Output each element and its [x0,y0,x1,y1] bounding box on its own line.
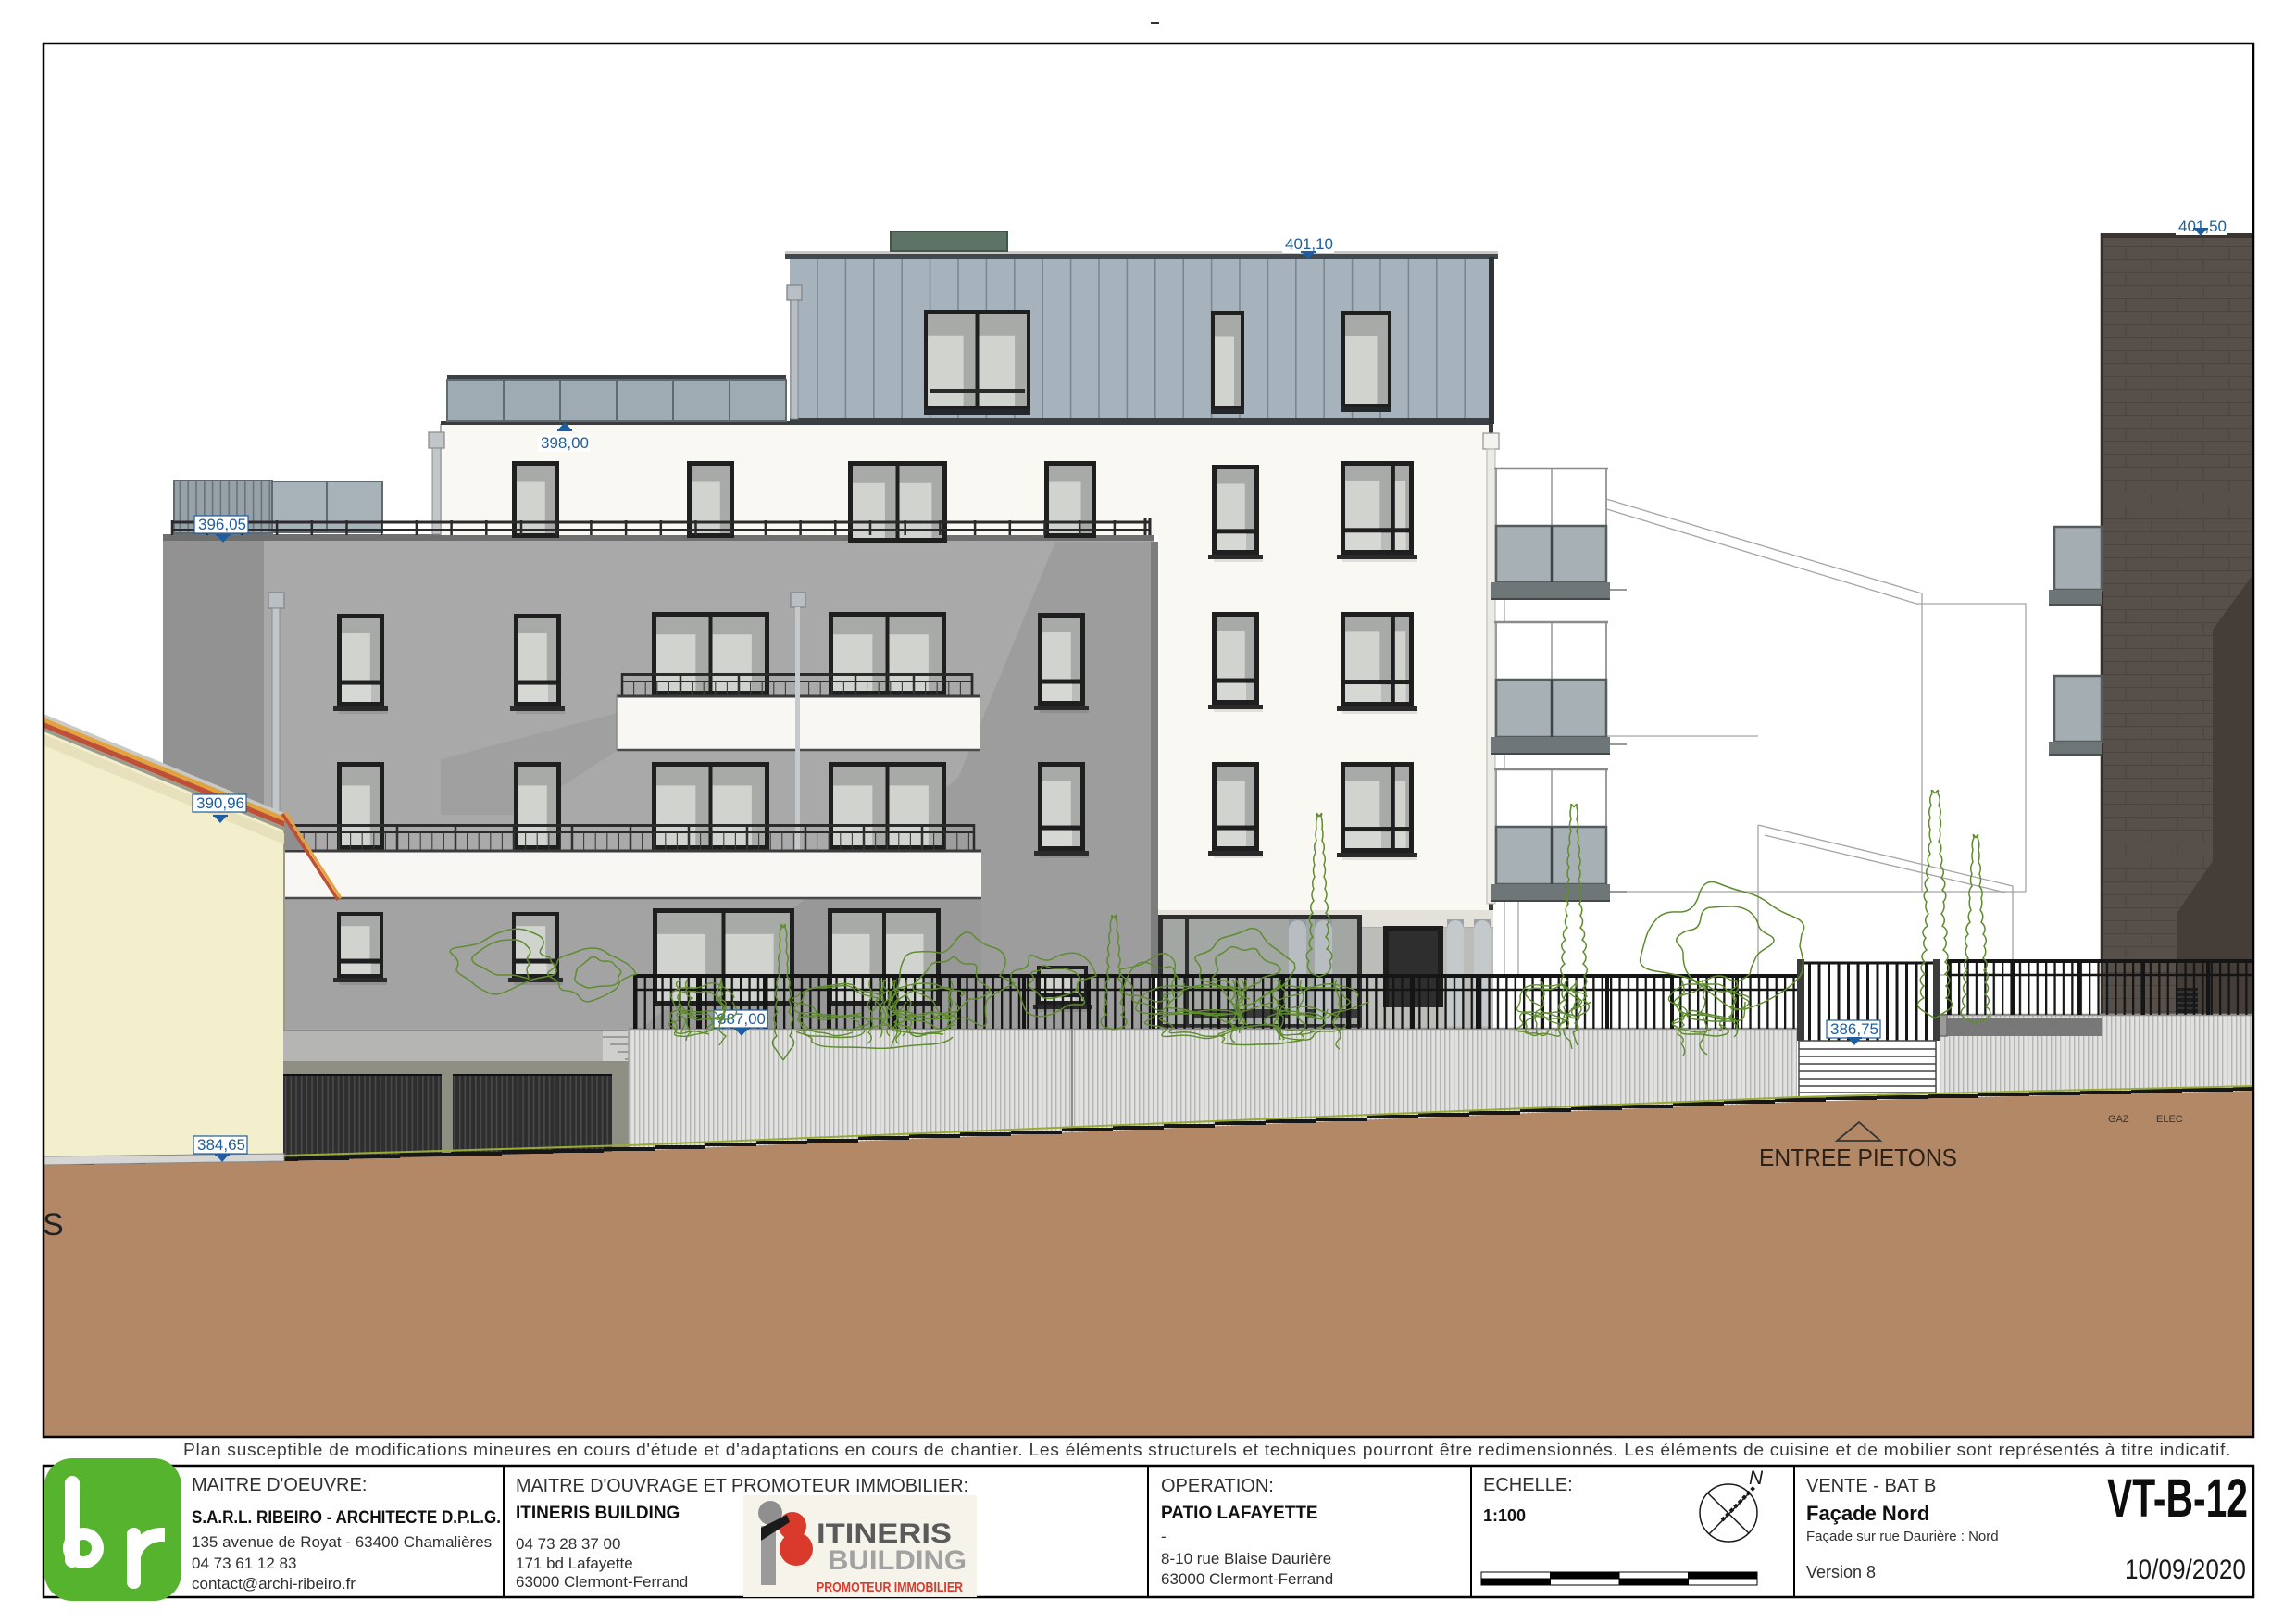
svg-text:PROMOTEUR IMMOBILIER: PROMOTEUR IMMOBILIER [817,1580,963,1595]
svg-text:04 73 28 37 00: 04 73 28 37 00 [516,1535,620,1553]
svg-text:ITINERIS BUILDING: ITINERIS BUILDING [516,1504,680,1523]
svg-text:386,75: 386,75 [1830,1020,1878,1038]
svg-text:398,00: 398,00 [541,434,589,452]
svg-text:VT-B-12: VT-B-12 [2107,1468,2248,1529]
svg-text:10/09/2020: 10/09/2020 [2125,1555,2246,1585]
svg-text:BUILDING: BUILDING [828,1545,967,1576]
svg-text:63000 Clermont-Ferrand: 63000 Clermont-Ferrand [1161,1570,1333,1588]
svg-text:1:100: 1:100 [1483,1506,1526,1525]
svg-text:401,10: 401,10 [1285,235,1333,253]
svg-text:ELEC: ELEC [2156,1114,2183,1125]
svg-text:MAITRE D'OUVRAGE ET PROMOTEUR: MAITRE D'OUVRAGE ET PROMOTEUR IMMOBILIER… [516,1476,968,1496]
svg-text:ECHELLE:: ECHELLE: [1483,1475,1573,1495]
svg-text:PATIO LAFAYETTE: PATIO LAFAYETTE [1161,1504,1318,1523]
svg-text:8-10 rue Blaise Daurière: 8-10 rue Blaise Daurière [1161,1550,1331,1568]
svg-text:171 bd Lafayette: 171 bd Lafayette [516,1555,633,1572]
svg-text:GAZ: GAZ [2108,1114,2129,1125]
svg-text:-: - [1161,1528,1167,1545]
svg-text:ENTREE PIETONS: ENTREE PIETONS [1759,1143,1957,1171]
svg-text:63000 Clermont-Ferrand: 63000 Clermont-Ferrand [516,1573,688,1591]
svg-text:VENTE - BAT B: VENTE - BAT B [1806,1476,1936,1496]
svg-text:N: N [1749,1468,1764,1489]
svg-text:S.A.R.L. RIBEIRO - ARCHITECTE: S.A.R.L. RIBEIRO - ARCHITECTE D.P.L.G. [192,1508,501,1528]
svg-text:contact@archi-ribeiro.fr: contact@archi-ribeiro.fr [192,1575,356,1593]
svg-text:Façade sur rue Daurière : Nord: Façade sur rue Daurière : Nord [1806,1529,1999,1544]
svg-text:396,05: 396,05 [198,516,246,533]
svg-text:390,96: 390,96 [196,794,244,812]
svg-text:Version 8: Version 8 [1806,1563,1876,1581]
svg-text:Façade Nord: Façade Nord [1806,1502,1929,1525]
svg-text:384,65: 384,65 [197,1136,245,1154]
svg-text:OPERATION:: OPERATION: [1161,1476,1274,1496]
svg-text:04 73 61 12 83: 04 73 61 12 83 [192,1555,296,1572]
svg-text:MAITRE D'OEUVRE:: MAITRE D'OEUVRE: [192,1475,367,1495]
svg-text:Plan susceptible de modificati: Plan susceptible de modifications mineur… [183,1441,2231,1459]
svg-text:135 avenue de Royat - 63400 Ch: 135 avenue de Royat - 63400 Chamalières [192,1533,492,1551]
svg-text:S: S [43,1207,64,1243]
